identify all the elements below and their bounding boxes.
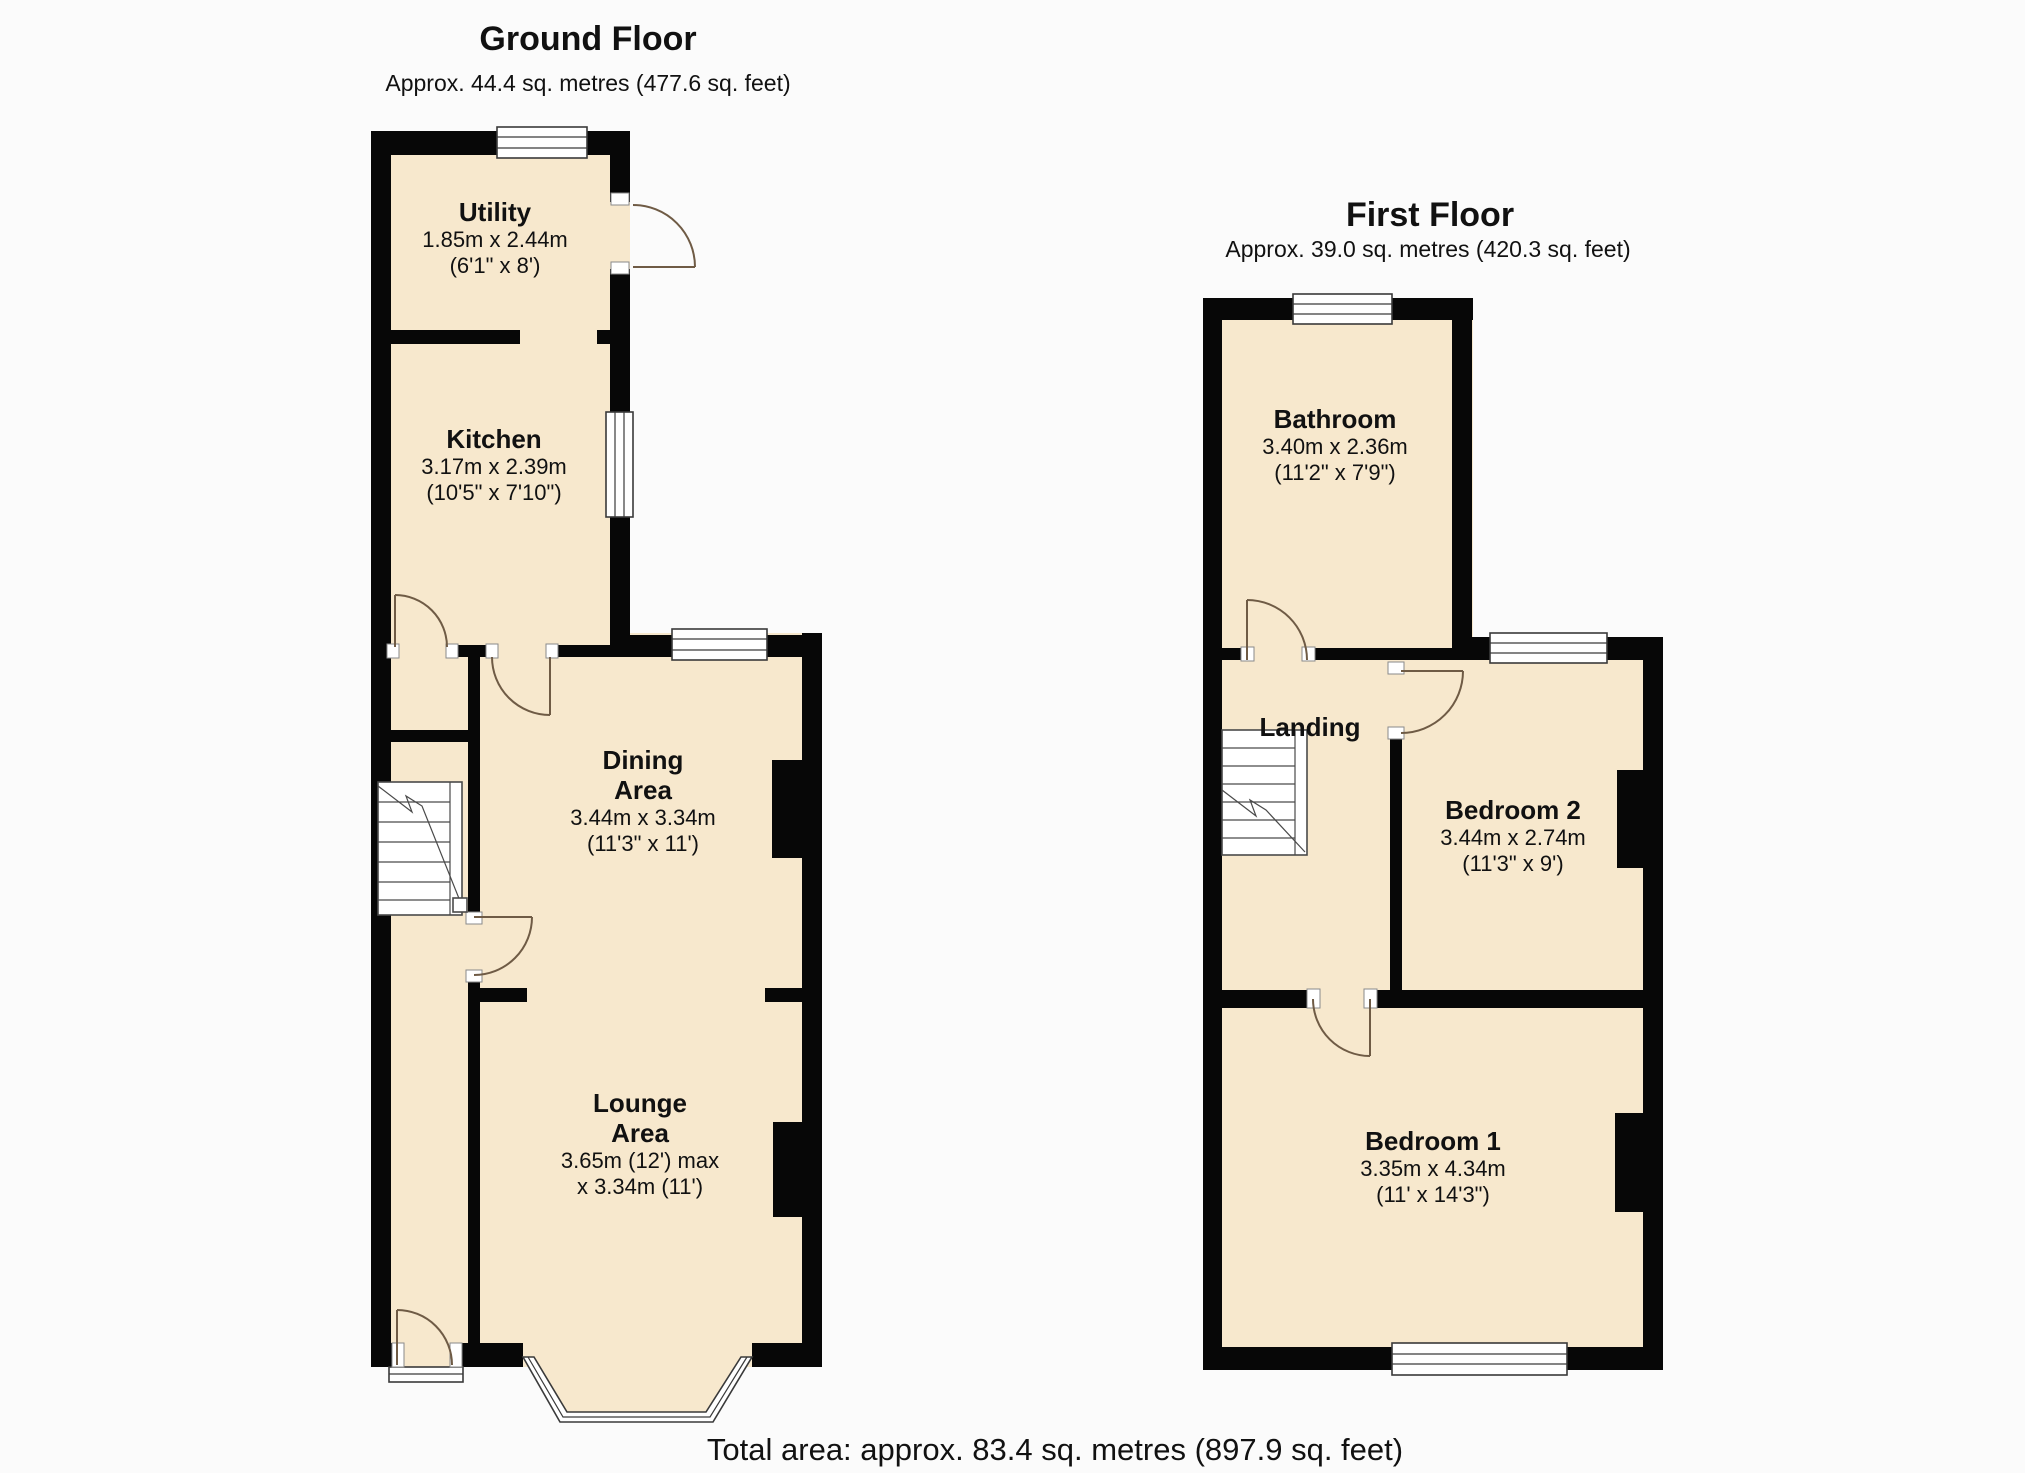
bedroom1-chimney-breast <box>1615 1113 1643 1212</box>
bedroom2-window <box>1490 633 1607 663</box>
bedroom2-chimney-breast <box>1617 770 1643 868</box>
ground-floor-stairs <box>378 782 467 915</box>
room-name: Lounge <box>561 1088 719 1118</box>
first-floor-subtitle: Approx. 39.0 sq. metres (420.3 sq. feet) <box>1225 236 1630 263</box>
room-size-metric: 3.44m x 3.34m <box>570 805 716 831</box>
room-size-metric: 1.85m x 2.44m <box>422 227 568 253</box>
room-label-landing: Landing <box>1259 712 1360 742</box>
room-label-utility: Utility 1.85m x 2.44m (6'1" x 8') <box>422 197 568 279</box>
dining-window <box>672 629 767 660</box>
utility-window <box>497 127 587 158</box>
room-label-bedroom-1: Bedroom 1 3.35m x 4.34m (11' x 14'3") <box>1360 1126 1506 1208</box>
room-label-lounge-area: Lounge Area 3.65m (12') max x 3.34m (11'… <box>561 1088 719 1200</box>
ground-floor-title: Ground Floor <box>479 20 696 59</box>
total-area-text: Total area: approx. 83.4 sq. metres (897… <box>707 1432 1403 1468</box>
room-size-imperial: (11'3" x 9') <box>1440 851 1586 877</box>
kitchen-window <box>606 412 633 517</box>
room-name: Utility <box>422 197 568 227</box>
room-name: Dining <box>570 745 716 775</box>
room-size-imperial: (11'3" x 11') <box>570 831 716 857</box>
bathroom-window <box>1293 294 1392 324</box>
floorplan-drawing <box>0 0 2025 1473</box>
room-name-line2: Area <box>570 775 716 805</box>
room-size-metric: 3.40m x 2.36m <box>1262 434 1408 460</box>
room-label-dining-area: Dining Area 3.44m x 3.34m (11'3" x 11') <box>570 745 716 857</box>
room-name: Bedroom 1 <box>1360 1126 1506 1156</box>
room-size-metric: 3.65m (12') max <box>561 1148 719 1174</box>
bedroom1-window <box>1392 1343 1567 1375</box>
room-size-imperial: (10'5" x 7'10") <box>421 480 567 506</box>
first-floor-title: First Floor <box>1346 196 1514 235</box>
room-name: Kitchen <box>421 424 567 454</box>
room-size-metric: 3.44m x 2.74m <box>1440 825 1586 851</box>
room-label-bedroom-2: Bedroom 2 3.44m x 2.74m (11'3" x 9') <box>1440 795 1586 877</box>
room-name: Landing <box>1259 712 1360 742</box>
ground-floor-subtitle: Approx. 44.4 sq. metres (477.6 sq. feet) <box>385 70 790 97</box>
room-name: Bathroom <box>1262 404 1408 434</box>
room-size-imperial: (6'1" x 8') <box>422 253 568 279</box>
first-floor-stairs <box>1222 730 1307 855</box>
room-size-metric: 3.17m x 2.39m <box>421 454 567 480</box>
room-size-imperial: x 3.34m (11') <box>561 1174 719 1200</box>
room-label-bathroom: Bathroom 3.40m x 2.36m (11'2" x 7'9") <box>1262 404 1408 486</box>
room-label-kitchen: Kitchen 3.17m x 2.39m (10'5" x 7'10") <box>421 424 567 506</box>
dining-lounge-floor-area <box>371 633 822 1367</box>
front-door-sill <box>389 1367 463 1382</box>
room-name: Bedroom 2 <box>1440 795 1586 825</box>
floorplan-page: Ground Floor Approx. 44.4 sq. metres (47… <box>0 0 2025 1473</box>
room-name-line2: Area <box>561 1118 719 1148</box>
lounge-chimney-breast <box>773 1122 803 1217</box>
dining-chimney-breast <box>772 760 802 858</box>
room-size-imperial: (11'2" x 7'9") <box>1262 460 1408 486</box>
room-size-metric: 3.35m x 4.34m <box>1360 1156 1506 1182</box>
room-size-imperial: (11' x 14'3") <box>1360 1182 1506 1208</box>
